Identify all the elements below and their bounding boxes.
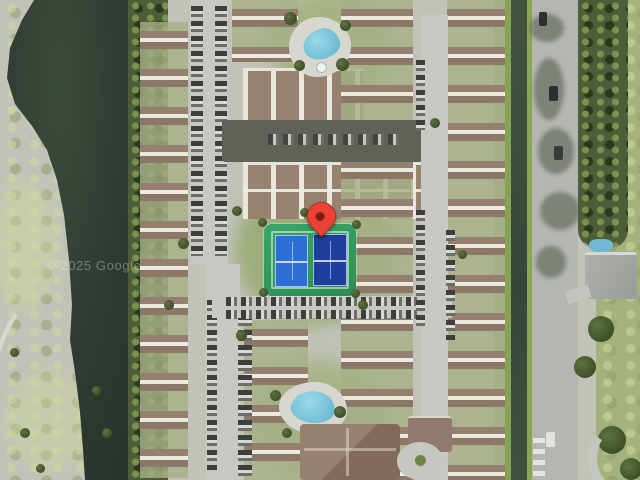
- tree-shadow: [536, 246, 566, 278]
- clubhouse-roof-ridge: [304, 448, 396, 451]
- clubhouse-roof: [300, 424, 400, 480]
- tree: [282, 428, 292, 438]
- canal-water: [511, 0, 527, 480]
- parked-cars-row: [268, 134, 400, 145]
- car-on-road: [546, 432, 555, 447]
- tree: [430, 118, 440, 128]
- backyard-pool-east: [589, 239, 613, 252]
- parked-cars-row: [226, 310, 436, 319]
- car-on-road: [539, 12, 547, 26]
- tree: [92, 386, 101, 395]
- parked-cars-row: [416, 210, 425, 330]
- parked-cars-row: [416, 60, 425, 130]
- parked-cars-row: [207, 300, 217, 470]
- street-vertical-east: [421, 15, 448, 480]
- tree: [358, 300, 368, 310]
- car-on-road: [554, 146, 563, 160]
- satellite-map-canvas[interactable]: © 2025 Google: [0, 0, 640, 480]
- parked-cars-row: [191, 6, 203, 256]
- tree: [164, 300, 174, 310]
- tree: [574, 356, 596, 378]
- map-attribution-watermark: © 2025 Google: [46, 258, 141, 273]
- tree: [588, 316, 614, 342]
- tree-shadow: [530, 14, 564, 42]
- tree: [458, 250, 467, 259]
- parked-cars-row: [446, 230, 455, 340]
- tree: [232, 206, 242, 216]
- tree: [284, 12, 297, 25]
- tree-shadow: [540, 192, 580, 230]
- tree: [102, 428, 112, 438]
- crosswalk-markings: [533, 438, 545, 480]
- tree: [258, 218, 267, 227]
- tree: [259, 288, 268, 297]
- tree: [340, 20, 351, 31]
- tree: [334, 406, 346, 418]
- tree: [20, 428, 30, 438]
- tree: [270, 390, 281, 401]
- tennis-court-left: [275, 235, 308, 287]
- housing-row-west: [140, 22, 188, 478]
- housing-cluster-northwest: [232, 0, 298, 62]
- court-service-line: [330, 241, 331, 279]
- housing-column-east: [447, 0, 505, 480]
- tree: [351, 289, 360, 298]
- house-roof-east: [585, 252, 637, 299]
- tree: [352, 220, 361, 229]
- tree: [36, 464, 45, 473]
- clubhouse-roof-ridge: [346, 428, 349, 476]
- parked-cars-row: [226, 297, 436, 306]
- tree: [10, 348, 19, 357]
- roadside-tree-strip: [578, 0, 628, 248]
- tree: [294, 60, 305, 71]
- tree: [236, 330, 247, 341]
- hot-tub: [316, 62, 327, 73]
- tree: [178, 238, 189, 249]
- parked-cars-row: [238, 300, 252, 478]
- court-service-line: [292, 242, 293, 280]
- tree: [336, 58, 349, 71]
- courtyard-island: [415, 455, 426, 466]
- car-on-road: [549, 86, 558, 101]
- tennis-court-right: [313, 234, 347, 286]
